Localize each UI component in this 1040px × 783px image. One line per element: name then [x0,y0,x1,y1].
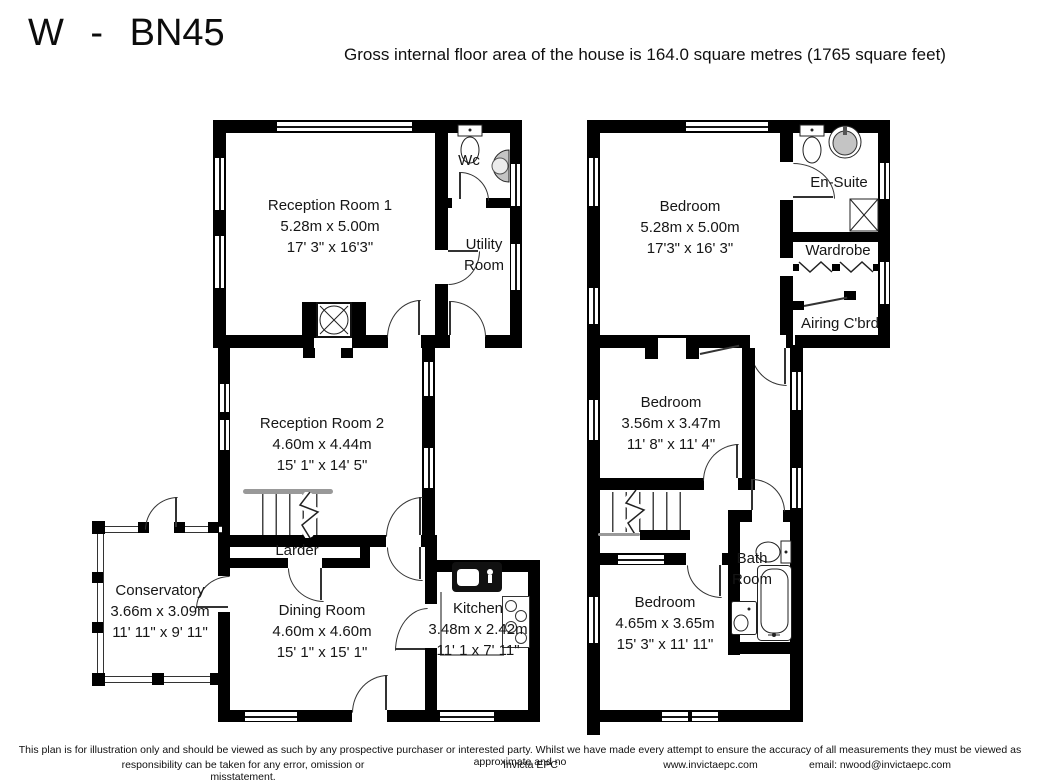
chimney-breast [302,302,316,338]
post [92,673,105,686]
kitchen-sink-icon [452,562,502,592]
room-label-conservatory: Conservatory 3.66m x 3.09m 11' 11" x 9' … [85,580,235,643]
room-size-metric: 4.65m x 3.65m [565,613,765,634]
room-size-imperial: 15' 3" x 11' 11" [565,634,765,655]
room-label-bedroom-3: Bedroom 4.65m x 3.65m 15' 3" x 11' 11" [565,592,765,655]
window [215,234,224,290]
fireplace-icon [316,302,352,338]
room-name: Bedroom [590,196,790,217]
door-leaf [804,297,848,307]
door-gap [750,335,786,348]
door-arc [145,497,178,530]
door-arc [752,479,785,512]
room-name: Kitchen [420,598,536,619]
room-size-metric: 5.28m x 5.00m [590,217,790,238]
room-label-bedroom-2: Bedroom 3.56m x 3.47m 11' 8" x 11' 4" [571,392,771,455]
room-label-dining-room: Dining Room 4.60m x 4.60m 15' 1" x 15' 1… [222,600,422,663]
room-label-airing-cupboard: Airing C'brd [790,313,890,334]
room-name: Bath [724,548,780,569]
basin-icon [827,124,863,160]
fireplace-recess [314,338,352,348]
room-label-bedroom-1: Bedroom 5.28m x 5.00m 17'3" x 16' 3" [590,196,790,259]
chimney-breast [303,348,315,358]
room-size-imperial: 11' 11" x 9' 11" [85,622,235,643]
door-arc [386,497,423,537]
room-size-metric: 4.60m x 4.60m [222,621,422,642]
room-label-reception-room-1: Reception Room 1 5.28m x 5.00m 17' 3" x … [230,195,430,258]
room-name: Utility [450,234,518,255]
door-arc [288,568,324,602]
window [215,156,224,212]
chimney-breast [341,348,353,358]
post [208,522,219,533]
wall [640,530,690,540]
window [589,286,598,326]
chimney-breast [686,348,699,359]
door-arc [750,348,787,386]
room-size-metric: 3.48m x 2.42m [420,619,536,640]
shower-icon [849,198,879,232]
post [92,521,105,534]
room-name: Conservatory [85,580,235,601]
door-arc [450,301,486,337]
room-label-bath-room: Bath Room [724,548,780,590]
disclaimer-footer: This plan is for illustration only and s… [0,744,1040,768]
room-label-wardrobe: Wardrobe [796,240,880,261]
room-name: Bedroom [565,592,765,613]
chimney-breast [352,302,366,338]
window [243,712,299,721]
room-label-wc: Wc [452,150,486,171]
room-name: Wc [452,150,486,171]
chimney-breast [645,348,658,359]
room-label-en-suite: En-Suite [798,172,880,193]
door-gap [686,553,722,565]
fireplace-recess [315,348,341,355]
contact-email: email: nwood@invictaepc.com [800,759,960,771]
window [660,712,690,721]
toilet-icon [797,124,827,166]
window [275,122,414,131]
room-name: Airing C'brd [790,313,890,334]
room-name: Dining Room [222,600,422,621]
window [511,162,520,208]
wall [435,120,448,348]
room-size-imperial: 15' 1" x 14' 5" [222,455,422,476]
room-name: Larder [237,540,357,561]
room-name: Room [724,569,780,590]
window [424,446,433,490]
disclaimer-line-2: responsibility can be taken for any erro… [88,759,398,783]
window [690,712,720,721]
room-name: Reception Room 2 [222,413,422,434]
room-size-metric: 5.28m x 5.00m [230,216,430,237]
handrail [598,533,640,536]
window [220,382,229,414]
window [880,260,889,306]
room-label-larder: Larder [237,540,357,561]
page-title: W - BN45 [28,12,225,55]
post [210,673,222,685]
wall [792,301,804,310]
window [616,555,666,564]
window [684,122,770,131]
door-arc [387,300,421,338]
door-arc [352,675,388,713]
room-name: Bedroom [571,392,771,413]
door-gap [435,250,448,284]
room-size-imperial: 17'3" x 16' 3" [590,238,790,259]
room-label-utility-room: Utility Room [450,234,518,276]
window [880,161,889,201]
room-label-kitchen: Kitchen 3.48m x 2.42m 11' 1 x 7' 11" [420,598,536,661]
room-size-metric: 3.56m x 3.47m [571,413,771,434]
room-name: Room [450,255,518,276]
room-label-reception-room-2: Reception Room 2 4.60m x 4.44m 15' 1" x … [222,413,422,476]
room-size-imperial: 11' 8" x 11' 4" [571,434,771,455]
wall [795,335,890,348]
room-name: En-Suite [798,172,880,193]
website-url: www.invictaepc.com [648,759,773,771]
fireplace-recess [658,338,686,348]
door-gap [780,162,793,200]
door-arc [387,547,423,581]
window [424,360,433,398]
floor-area-note: Gross internal floor area of the house i… [344,45,946,65]
room-size-imperial: 15' 1" x 15' 1" [222,642,422,663]
door-gap [780,258,793,276]
room-size-imperial: 11' 1 x 7' 11" [420,640,536,661]
room-size-metric: 3.66m x 3.09m [85,601,235,622]
company-name: Invicta EPC [478,759,583,771]
post [152,673,164,685]
window [792,466,801,510]
room-size-imperial: 17' 3" x 16'3" [230,237,430,258]
stair-break-icon [294,492,324,538]
window [792,370,801,412]
room-name: Wardrobe [796,240,880,261]
window [438,712,496,721]
room-size-metric: 4.60m x 4.44m [222,434,422,455]
room-name: Reception Room 1 [230,195,430,216]
